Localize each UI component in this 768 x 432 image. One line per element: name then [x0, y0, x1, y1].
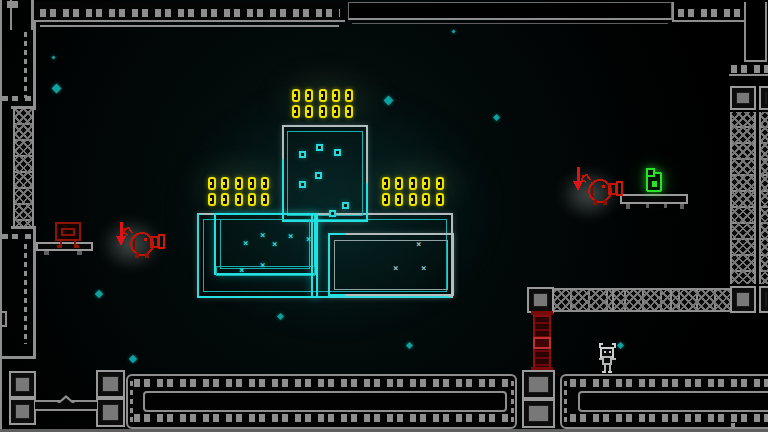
bottom-right-dash-bottom: [570, 414, 768, 422]
truss-divider-1: [612, 290, 614, 310]
coin-group-right-coin: [422, 193, 430, 206]
cyan-bit: [329, 210, 336, 217]
x-mark-gray: ×: [393, 264, 398, 273]
pickup-platform: [620, 194, 688, 204]
coin-group-right-coin: [436, 193, 444, 206]
coin-group-left-coin: [248, 193, 256, 206]
bottom-center-block-2: [522, 399, 555, 428]
right-wall-block-top-a: [730, 86, 756, 110]
coin-group-top-coin: [319, 105, 327, 118]
player-character: [596, 341, 622, 375]
coin-group-left-coin: [208, 177, 216, 190]
coin-group-top-coin: [345, 89, 353, 102]
cyan-bit: [299, 151, 306, 158]
pickup-platform-foot-2: [646, 204, 649, 208]
bottom-mid-cap-left: [130, 381, 133, 423]
top-right-slot-right: [765, 2, 767, 62]
right-wall-block-bottom-b: [759, 286, 768, 313]
bottom-mid-dash-bottom: [134, 414, 509, 422]
top-right-line-h: [672, 20, 746, 22]
game-viewport[interactable]: ××××××××××: [0, 0, 768, 432]
coin-group-right-coin: [422, 177, 430, 190]
coin-group-top-coin: [305, 89, 313, 102]
coin-group-right-coin: [409, 193, 417, 206]
bottom-right-dash-top: [570, 379, 768, 387]
red-creature-right: [580, 171, 624, 207]
bottom-mid-cap-right: [511, 381, 514, 423]
bottom-left-block-2: [9, 398, 36, 425]
top-right-slot-bottom: [744, 60, 767, 62]
pickup-platform-foot-1: [626, 204, 630, 209]
teal-particle: [95, 290, 103, 298]
right-wall-block-top-b: [759, 86, 768, 110]
coin-group-left-coin: [221, 177, 229, 190]
left-room-bottom-strip: [216, 266, 315, 276]
x-mark-cyan: ×: [272, 240, 277, 249]
left-wall-notch: [0, 311, 7, 327]
coin-group-left-coin: [208, 193, 216, 206]
red-pillar-mid: [533, 337, 551, 349]
top-right-slot-left: [744, 2, 746, 62]
x-mark-cyan: ×: [260, 231, 265, 240]
left-wall-dash-h2: [2, 234, 32, 239]
top-right-wall-line-v: [672, 2, 674, 22]
right-room-inner-frame: [334, 240, 448, 290]
left-wall-dash-v1: [24, 32, 27, 98]
bottom-mid-inner: [143, 391, 507, 412]
coin-group-left-coin: [221, 193, 229, 206]
x-mark-cyan: ×: [239, 266, 244, 275]
coin-group-right-coin: [395, 193, 403, 206]
right-wall-block-bottom-a: [730, 286, 756, 313]
top-wall-left-dashes: [40, 9, 340, 17]
teal-particle: [51, 55, 55, 59]
coin-group-right-coin: [436, 177, 444, 190]
pickup-platform-foot-3: [664, 204, 667, 208]
bottom-mid-dash-top: [134, 379, 509, 387]
green-key-pickup: [645, 168, 663, 193]
coin-group-right-coin: [409, 177, 417, 190]
pickup-platform-foot-4: [680, 204, 684, 209]
teal-particle: [493, 114, 500, 121]
top-wall-mid-line2: [352, 23, 668, 24]
coin-group-top-coin: [332, 89, 340, 102]
coin-group-top-coin: [319, 89, 327, 102]
left-slot-line1: [10, 0, 12, 30]
red-creature-left: [122, 224, 166, 260]
bench-foot-left: [44, 251, 49, 255]
right-wall-truss-a: [730, 112, 756, 284]
bottom-right-divider-dots: [731, 414, 735, 429]
cyan-bit: [316, 144, 323, 151]
coin-group-top-coin: [292, 105, 300, 118]
coin-group-right-coin: [382, 193, 390, 206]
left-wall-outer: [0, 0, 2, 432]
top-left-corner-block: [7, 1, 18, 8]
right-platform-truss: [554, 288, 730, 312]
coin-group-right-coin: [382, 177, 390, 190]
center-vline: [311, 213, 318, 298]
coin-glow-top: [262, 62, 392, 132]
coin-group-top-coin: [332, 105, 340, 118]
x-mark-cyan: ×: [306, 235, 311, 244]
left-wall-dash-h1: [2, 96, 32, 101]
coin-group-left-coin: [261, 193, 269, 206]
left-wall-dash-v2: [24, 244, 27, 344]
teal-particle: [129, 355, 137, 363]
coin-group-top-coin: [345, 105, 353, 118]
right-wall-truss-b: [759, 112, 768, 284]
left-wall-line-v1: [33, 20, 36, 110]
x-mark-cyan: ×: [288, 232, 293, 241]
bottom-center-block-1: [522, 370, 555, 399]
coin-group-left-coin: [235, 193, 243, 206]
bottom-left-block-1: [9, 371, 36, 398]
cyan-bit: [342, 202, 349, 209]
left-wall-corner-h: [0, 356, 35, 359]
x-mark-gray: ×: [416, 240, 421, 249]
coin-group-left-coin: [235, 177, 243, 190]
top-right-dashes2: [731, 65, 768, 73]
bottom-left-block-4: [96, 398, 125, 427]
x-mark-cyan: ×: [243, 239, 248, 248]
cyan-bit: [334, 149, 341, 156]
cyan-bit: [315, 172, 322, 179]
tower-inner-frame: [287, 131, 363, 216]
coin-group-right-coin: [395, 177, 403, 190]
truss-divider-2: [670, 290, 672, 310]
platform-block-left: [527, 287, 554, 313]
x-mark-gray: ×: [421, 264, 426, 273]
left-truss: [13, 109, 34, 226]
bench-foot-right: [77, 251, 82, 255]
teal-particle: [451, 29, 455, 33]
top-right-line-h2: [729, 74, 768, 76]
coin-group-top-coin: [305, 105, 313, 118]
x-mark-cyan: ×: [260, 261, 265, 270]
red-bench: [55, 221, 82, 249]
coin-group-left-coin: [261, 177, 269, 190]
coin-group-left-coin: [248, 177, 256, 190]
top-right-dashes: [678, 9, 740, 17]
teal-particle: [52, 84, 62, 94]
top-wall-mid-panel: [348, 2, 672, 20]
cyan-bit: [299, 181, 306, 188]
bottom-right-cap: [564, 381, 567, 423]
teal-particle: [406, 342, 413, 349]
coin-group-top-coin: [292, 89, 300, 102]
top-wall-left-line2: [40, 25, 339, 27]
bottom-right-inner: [578, 391, 768, 412]
bottom-left-block-3: [96, 370, 125, 398]
